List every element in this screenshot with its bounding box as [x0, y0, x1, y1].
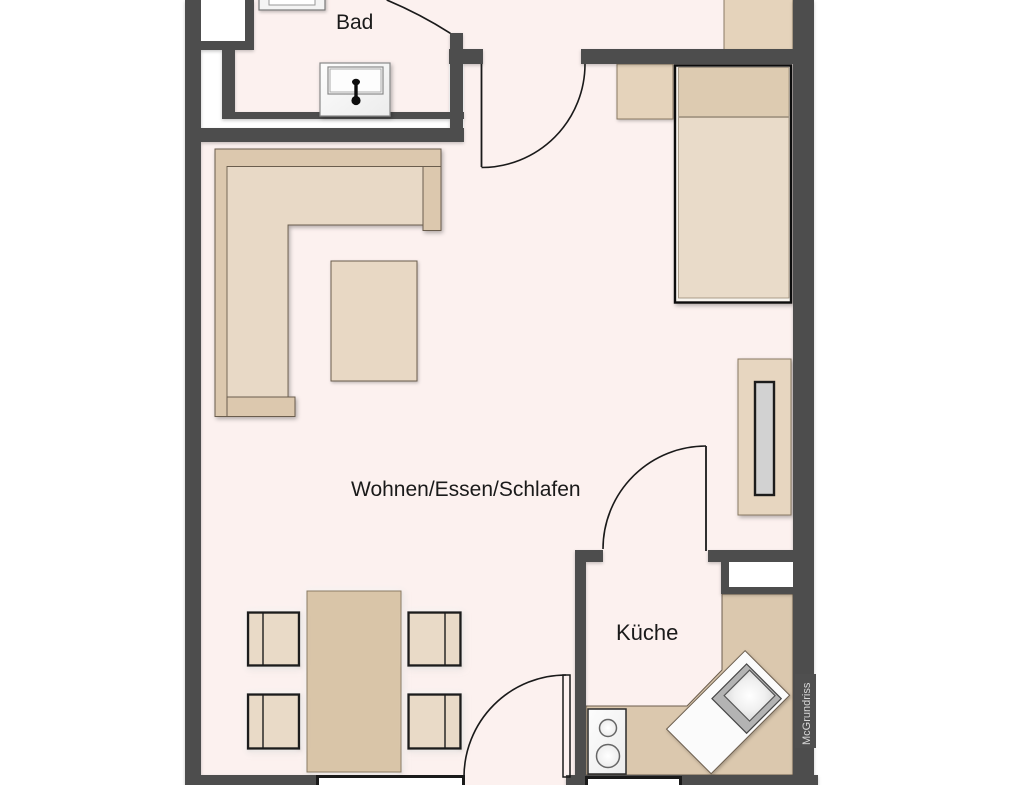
svg-text:Bad: Bad	[336, 11, 373, 34]
svg-text:McGrundriss: McGrundriss	[801, 682, 813, 745]
svg-text:Wohnen/Essen/Schlafen: Wohnen/Essen/Schlafen	[351, 478, 581, 501]
svg-text:Küche: Küche	[616, 620, 678, 645]
